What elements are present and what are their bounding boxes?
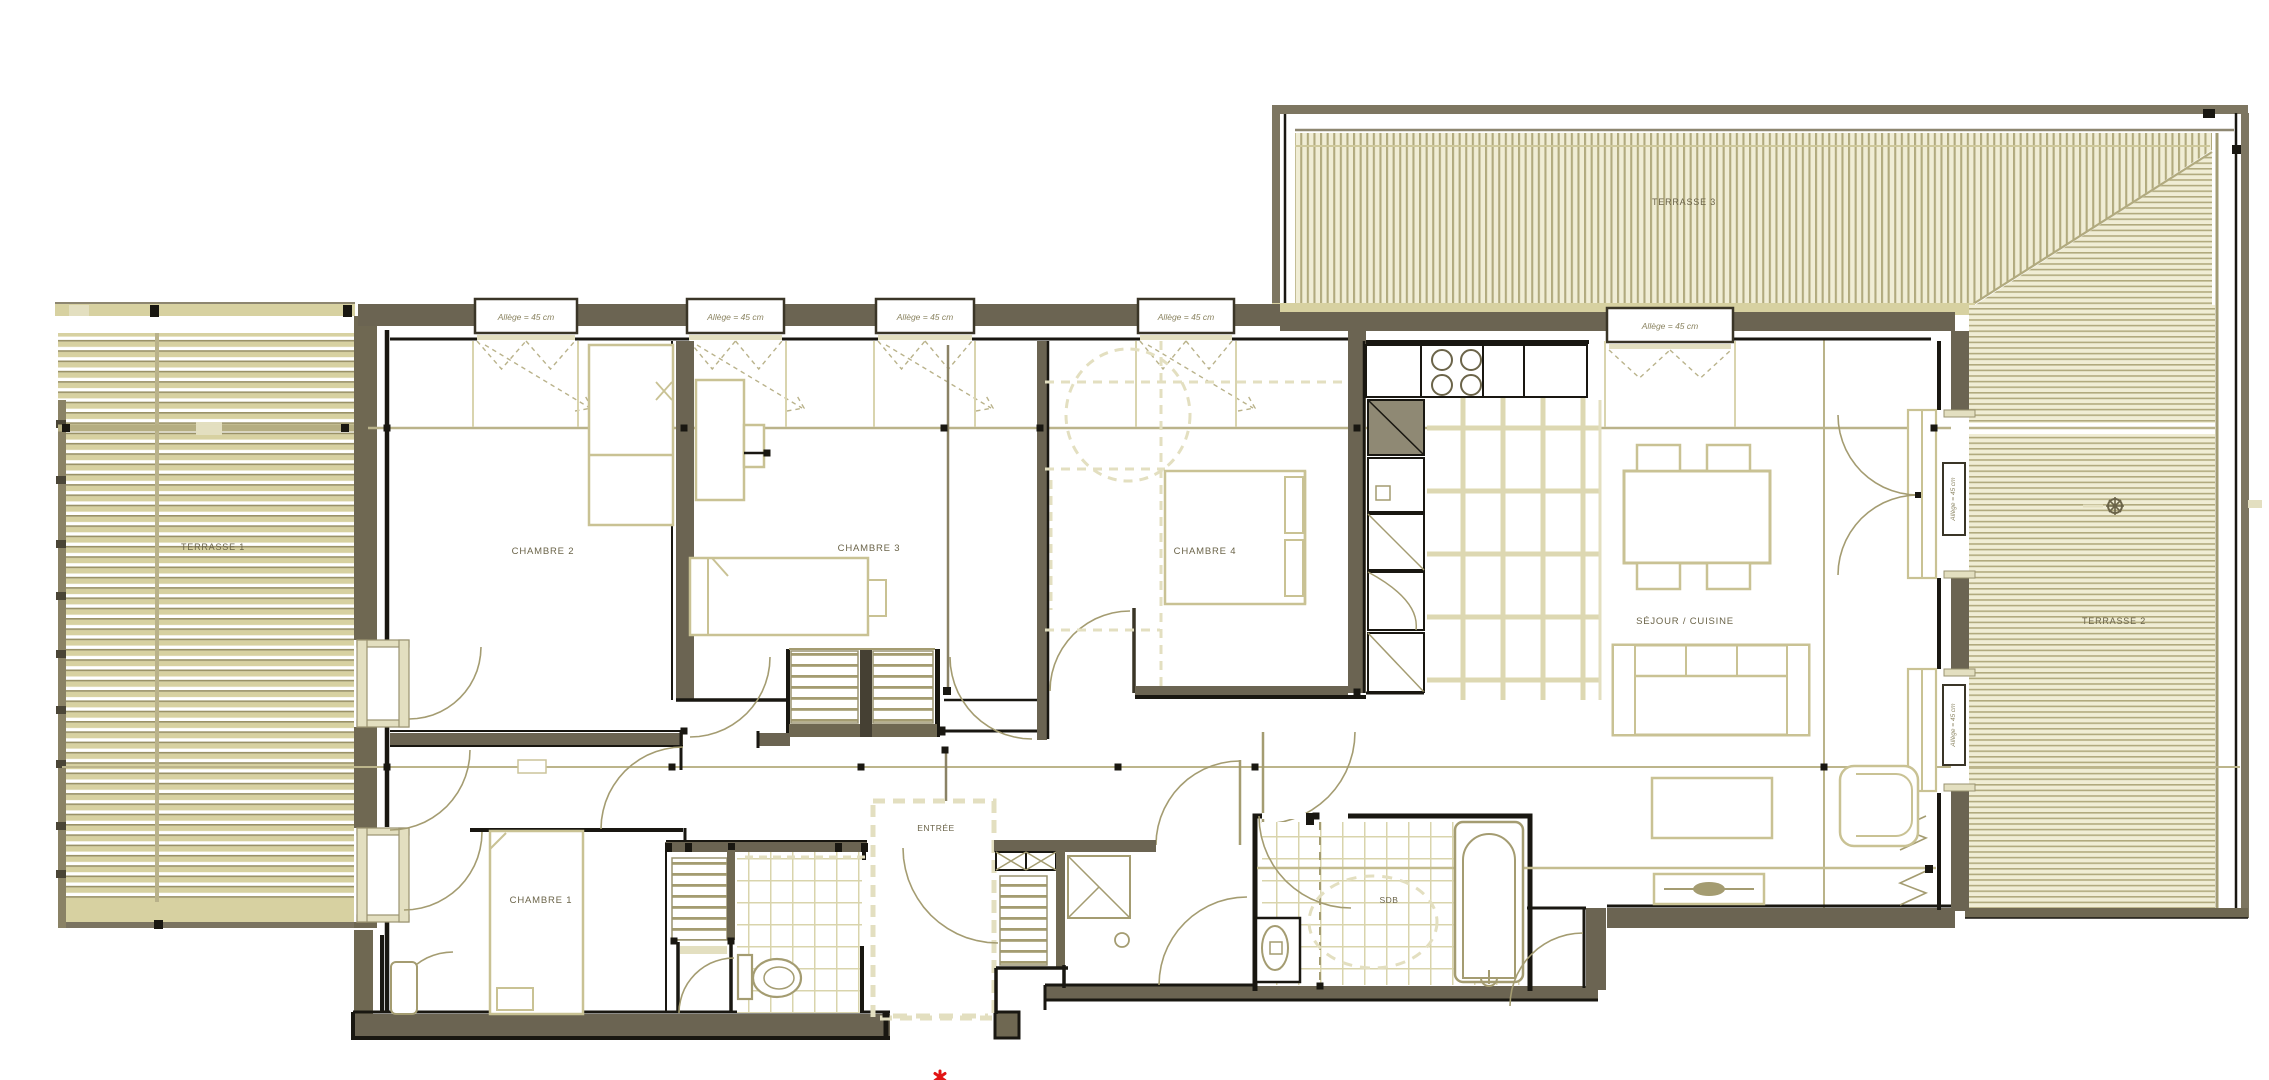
svg-text:TERRASSE 1: TERRASSE 1 (181, 542, 245, 552)
svg-text:ENTRÉE: ENTRÉE (917, 823, 954, 833)
svg-text:Allège = 45 cm: Allège = 45 cm (1641, 321, 1698, 331)
svg-text:SDB: SDB (1380, 895, 1399, 905)
svg-text:Allège = 45 cm: Allège = 45 cm (706, 312, 763, 322)
svg-text:Allège = 45 cm: Allège = 45 cm (1950, 477, 1957, 522)
svg-text:TERRASSE 3: TERRASSE 3 (1652, 197, 1716, 207)
svg-text:SÉJOUR / CUISINE: SÉJOUR / CUISINE (1636, 616, 1734, 627)
svg-text:CHAMBRE 4: CHAMBRE 4 (1174, 546, 1237, 557)
svg-text:Allège = 45 cm: Allège = 45 cm (1950, 703, 1957, 748)
svg-text:Allège = 45 cm: Allège = 45 cm (1157, 312, 1214, 322)
svg-text:CHAMBRE 1: CHAMBRE 1 (510, 895, 573, 906)
svg-text:Allège = 45 cm: Allège = 45 cm (896, 312, 953, 322)
svg-text:CHAMBRE 3: CHAMBRE 3 (838, 543, 901, 554)
svg-text:Allège = 45 cm: Allège = 45 cm (497, 312, 554, 322)
svg-text:TERRASSE 2: TERRASSE 2 (2082, 616, 2146, 626)
svg-text:CHAMBRE 2: CHAMBRE 2 (512, 546, 575, 557)
